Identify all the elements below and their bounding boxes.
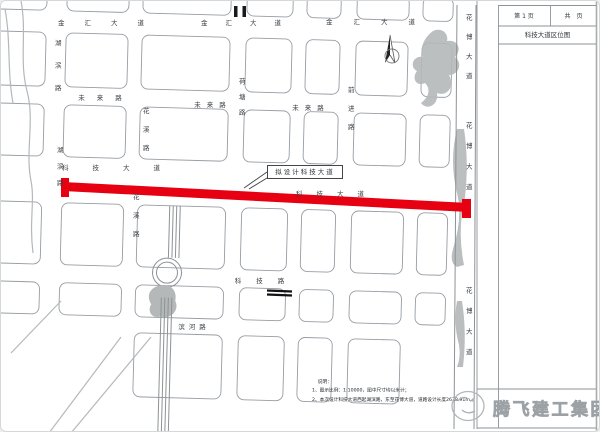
annotation-leader [244,172,267,189]
map-canvas [1,1,600,432]
city-block [65,33,128,89]
titleblock-page-number: 第 1 页 [498,7,550,26]
titleblock-total-pages: 共 页 [550,7,597,26]
city-block [240,208,288,271]
company-emblem-icon [449,386,489,426]
city-block [141,35,230,91]
drawing-sheet: 金汇大道金汇大道金汇大道未来路未来路未来路科技大道科技大道科技路滨河路湖滨路湖滨… [0,0,600,432]
company-name: 腾飞建工集团 [493,395,600,420]
road-end-cap-west [61,178,69,197]
city-block [1,280,40,314]
city-block [135,285,224,319]
city-block [350,211,404,274]
city-block [243,110,290,163]
frame-lines [477,1,597,432]
city-block [143,1,232,15]
city-block [1,102,44,156]
city-block [419,115,450,168]
notes-heading: 说明： [318,377,507,386]
city-block [349,291,402,324]
company-logo: 腾飞建工集团 [449,386,599,430]
map-markers [234,6,246,17]
road-end-cap-east [462,199,471,218]
city-block [300,209,336,272]
city-block [237,336,285,401]
city-block [239,288,286,321]
titleblock-drawing-title: 科技大道区位图 [498,26,597,44]
proposed-road-annotation: 拟设计科技大道 [267,165,343,179]
city-block [303,111,338,164]
city-block [357,1,410,20]
city-block [1,200,42,264]
city-block [353,113,406,166]
city-block [416,213,448,276]
green-area [148,285,177,318]
city-block [355,41,408,96]
city-block [136,205,226,269]
city-block [307,1,342,18]
city-block [60,203,124,267]
city-block [415,293,446,326]
city-block [63,105,126,159]
city-block [139,107,228,161]
city-block [247,1,294,17]
city-block [67,1,130,13]
city-block [423,1,454,22]
city-block [299,289,334,322]
city-block [305,40,340,95]
city-block [245,38,292,93]
city-block [59,283,122,317]
city-block [1,1,47,10]
